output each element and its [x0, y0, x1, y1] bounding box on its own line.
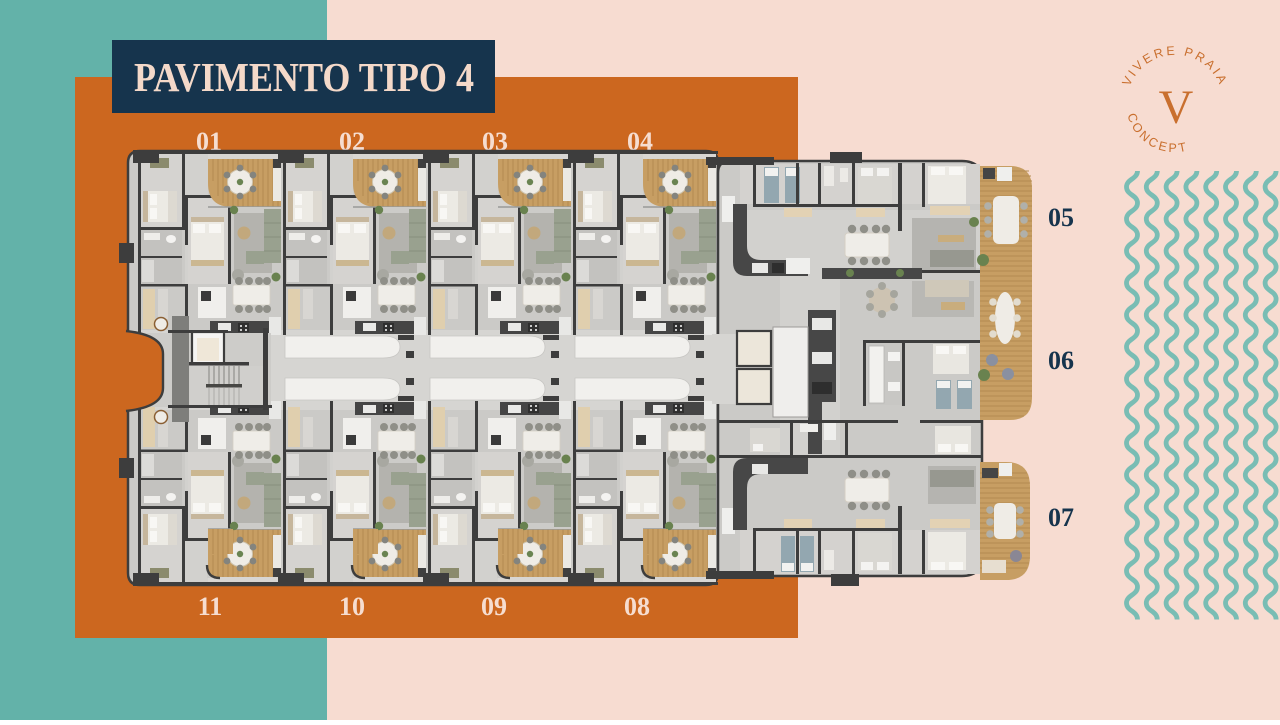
svg-text:V: V — [1159, 81, 1194, 134]
svg-text:08: 08 — [624, 592, 650, 621]
svg-text:PAVIMENTO TIPO 4: PAVIMENTO TIPO 4 — [134, 54, 474, 100]
svg-text:10: 10 — [339, 592, 365, 621]
svg-text:05: 05 — [1048, 203, 1074, 232]
svg-text:09: 09 — [481, 592, 507, 621]
svg-text:06: 06 — [1048, 346, 1074, 375]
svg-text:11: 11 — [198, 592, 223, 621]
svg-text:07: 07 — [1048, 503, 1074, 532]
